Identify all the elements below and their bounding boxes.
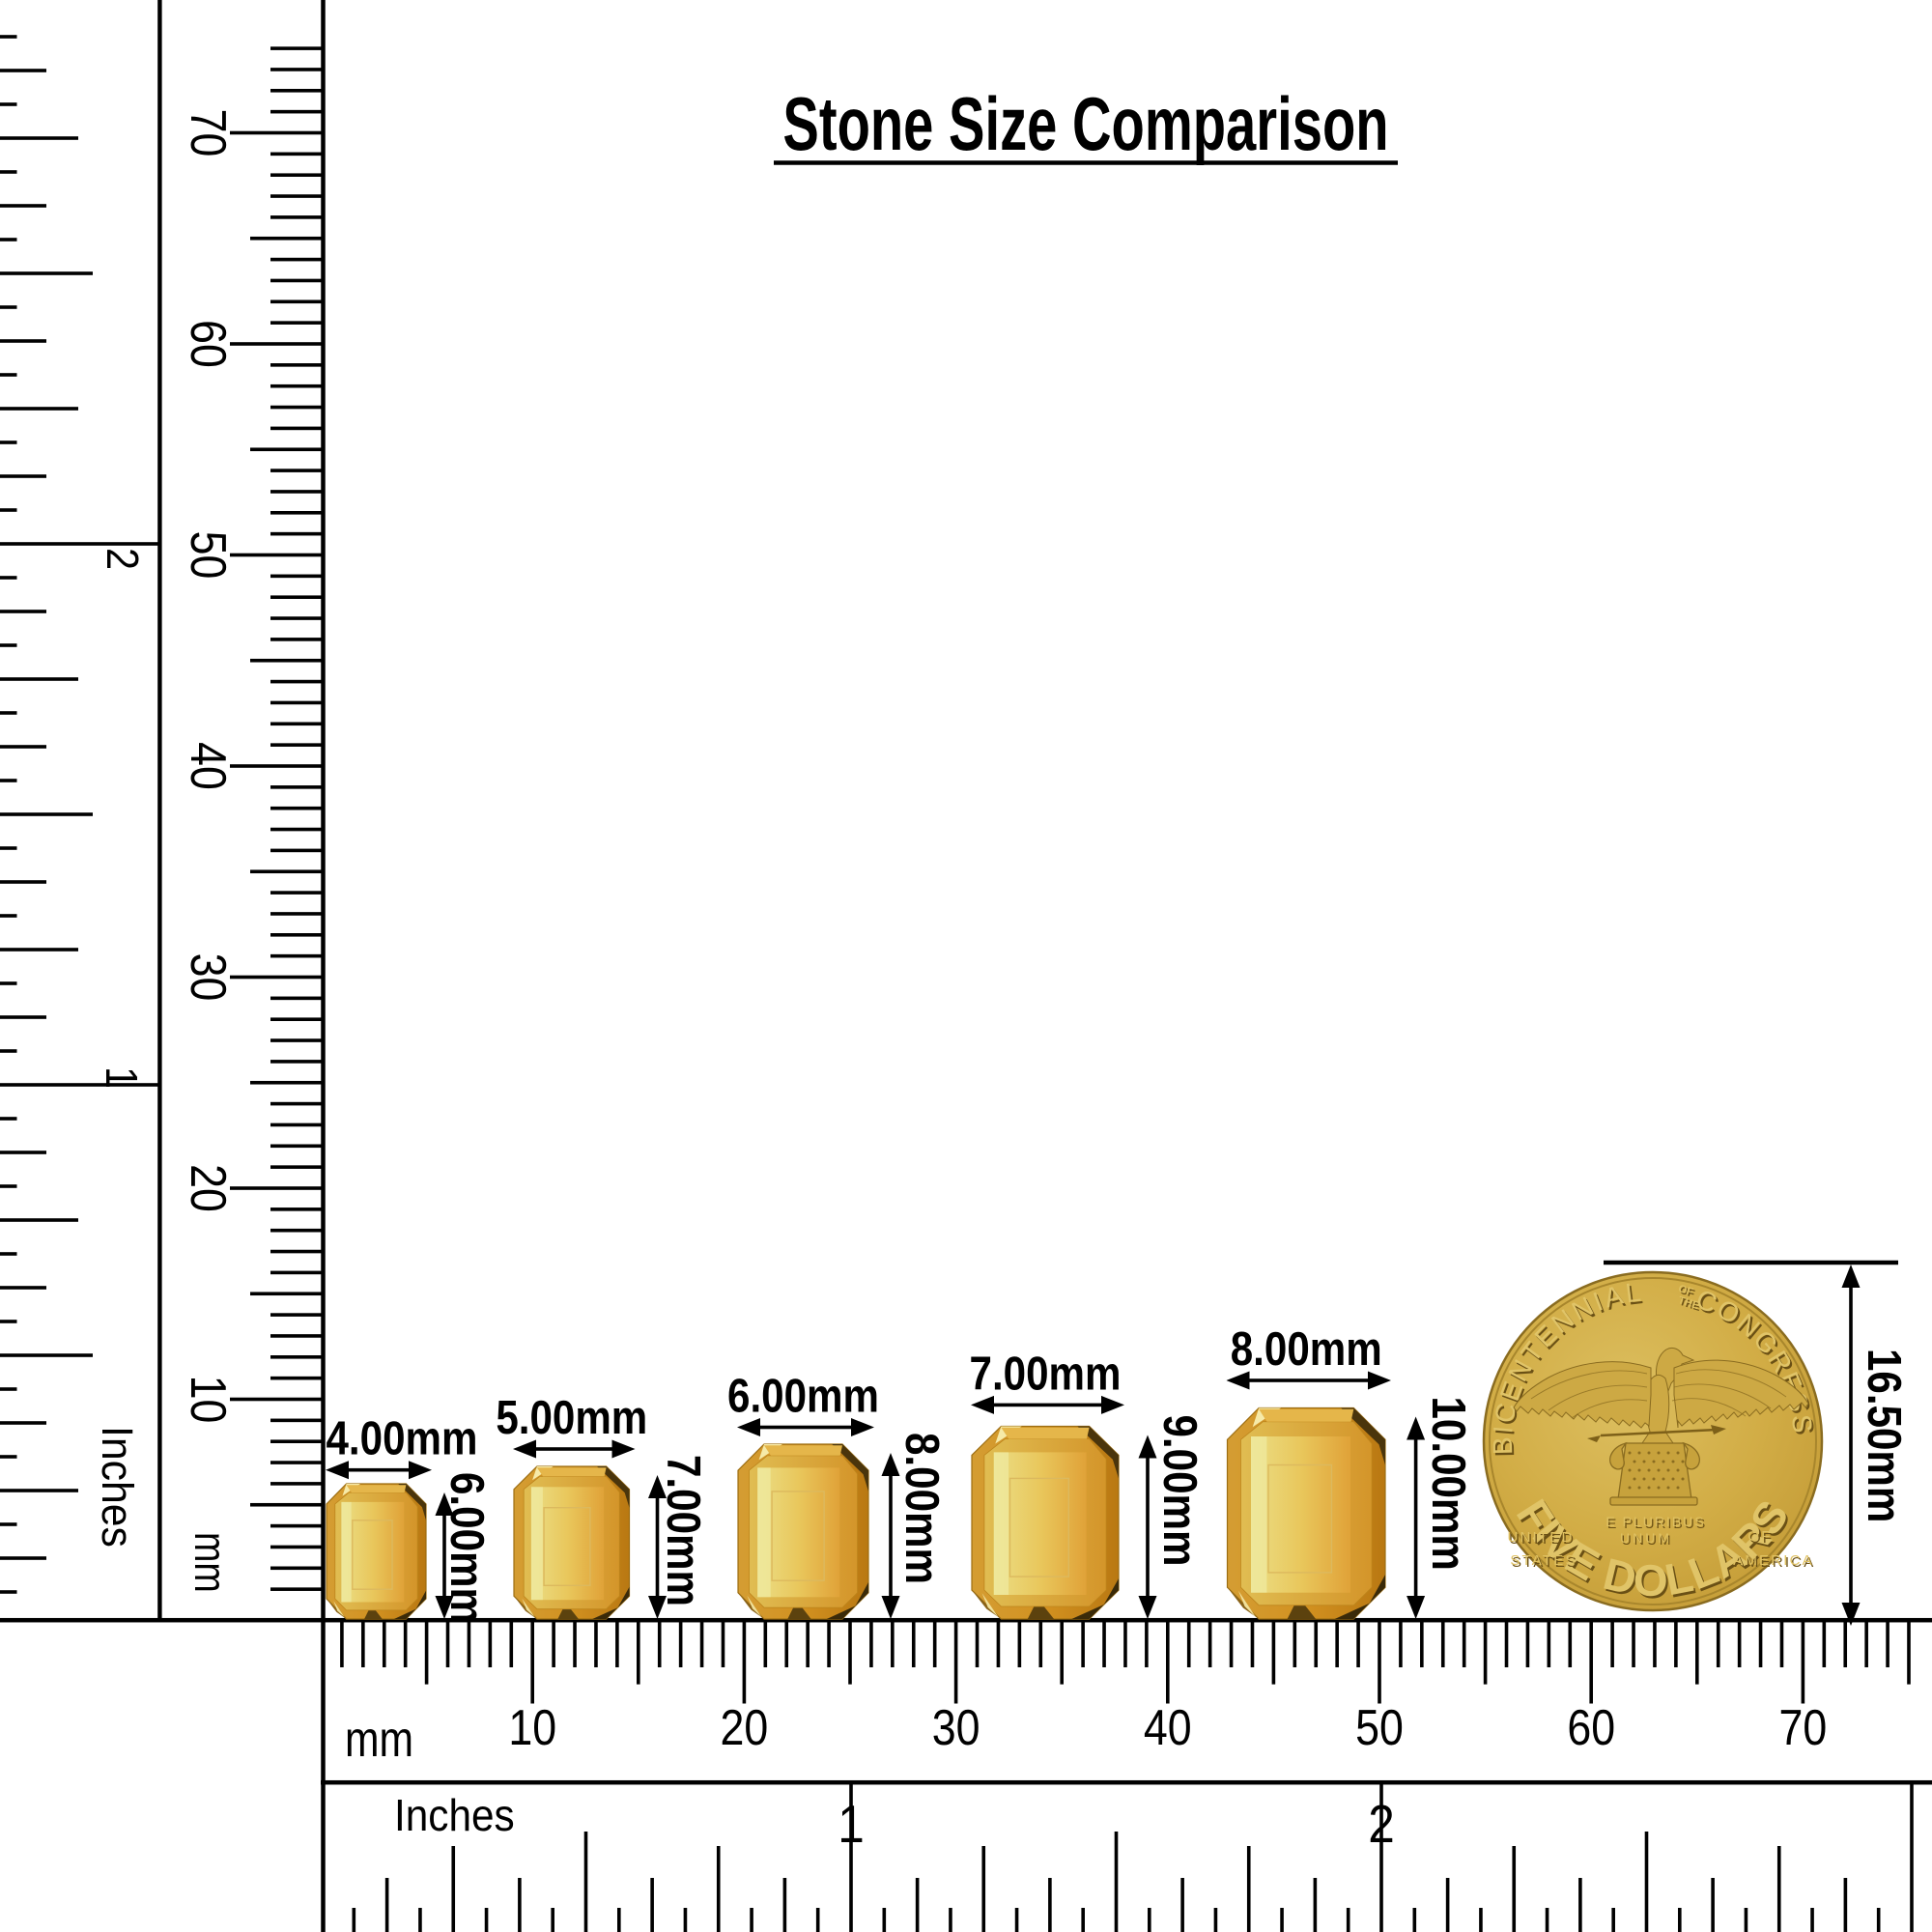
svg-text:UNITED: UNITED: [1507, 1529, 1574, 1546]
svg-text:30: 30: [180, 953, 236, 1002]
svg-text:5.00mm: 5.00mm: [496, 1391, 647, 1444]
svg-text:UNUM: UNUM: [1620, 1530, 1672, 1546]
svg-text:8.00mm: 8.00mm: [1231, 1322, 1382, 1376]
svg-text:2: 2: [97, 548, 147, 570]
svg-text:E PLURIBUS: E PLURIBUS: [1605, 1514, 1705, 1529]
svg-text:7.00mm: 7.00mm: [970, 1347, 1122, 1400]
svg-text:60: 60: [180, 320, 236, 368]
svg-text:10: 10: [180, 1376, 236, 1424]
svg-text:2: 2: [1368, 1796, 1395, 1855]
svg-text:10.00mm: 10.00mm: [1422, 1397, 1475, 1571]
svg-text:mm: mm: [345, 1712, 413, 1768]
svg-text:9.00mm: 9.00mm: [1153, 1415, 1207, 1567]
svg-text:6.00mm: 6.00mm: [440, 1472, 494, 1624]
svg-text:30: 30: [932, 1700, 980, 1756]
svg-text:8.00mm: 8.00mm: [895, 1433, 949, 1584]
svg-text:50: 50: [180, 531, 236, 580]
svg-text:20: 20: [721, 1700, 769, 1756]
svg-text:6.00mm: 6.00mm: [727, 1370, 879, 1423]
svg-text:16.50mm: 16.50mm: [1858, 1349, 1911, 1522]
svg-text:40: 40: [180, 742, 236, 790]
svg-text:STATES: STATES: [1510, 1552, 1577, 1569]
svg-text:Inches: Inches: [394, 1791, 515, 1840]
svg-text:mm: mm: [185, 1532, 235, 1593]
svg-text:20: 20: [180, 1164, 236, 1212]
svg-text:1: 1: [96, 1066, 146, 1089]
svg-text:50: 50: [1355, 1700, 1404, 1756]
svg-text:40: 40: [1144, 1700, 1192, 1756]
svg-text:OF: OF: [1747, 1528, 1772, 1545]
svg-text:7.00mm: 7.00mm: [657, 1455, 710, 1606]
svg-text:10: 10: [508, 1700, 556, 1756]
svg-text:4.00mm: 4.00mm: [327, 1412, 478, 1465]
svg-text:70: 70: [180, 109, 236, 157]
svg-text:Inches: Inches: [93, 1426, 141, 1548]
svg-text:60: 60: [1567, 1700, 1615, 1756]
svg-text:AMERICA: AMERICA: [1733, 1552, 1814, 1569]
svg-text:Stone Size Comparison: Stone Size Comparison: [782, 82, 1388, 166]
svg-text:1: 1: [838, 1796, 865, 1855]
svg-text:70: 70: [1779, 1700, 1828, 1756]
